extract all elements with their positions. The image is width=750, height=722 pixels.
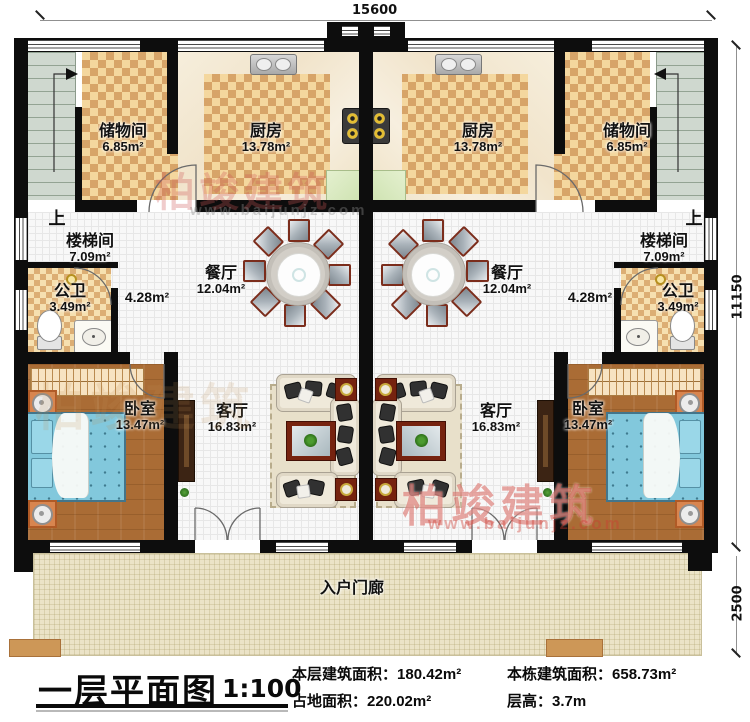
wall-stub-right — [688, 541, 712, 571]
label-kitchen-right: 厨房13.78m² — [454, 124, 502, 154]
title-underline-shadow — [36, 710, 288, 712]
label-dining-left: 餐厅12.04m² — [197, 266, 245, 296]
stat-label: 本层建筑面积： — [292, 666, 397, 683]
dim-tick — [706, 10, 716, 20]
label-bathroom-left: 公卫3.49m² — [49, 284, 90, 314]
label-bathroom-right: 公卫3.49m² — [657, 284, 698, 314]
dimension-right-lower: 2500 — [731, 590, 746, 622]
stat-value: 180.42m² — [397, 666, 461, 683]
title-underline — [36, 704, 288, 708]
label-storage-right: 储物间6.85m² — [603, 124, 651, 154]
label-up-left: 上 — [49, 204, 66, 229]
stat-value: 658.73m² — [612, 666, 676, 683]
label-stairwell-left: 楼梯间7.09m² — [66, 234, 114, 264]
dimension-line-top — [40, 20, 712, 21]
label-bedroom-right: 卧室13.47m² — [564, 402, 612, 432]
label-dining-right: 餐厅12.04m² — [483, 266, 531, 296]
stat-building-area: 本栋建筑面积：658.73m² — [507, 663, 676, 684]
porch-step — [9, 639, 61, 657]
porch-step — [546, 639, 603, 657]
stat-label: 占地面积： — [292, 693, 367, 710]
stat-floor-area: 本层建筑面积：180.42m² — [292, 663, 461, 684]
stat-footprint-area: 占地面积：220.02m² — [292, 690, 431, 711]
label-stairwell-right: 楼梯间7.09m² — [640, 234, 688, 264]
stat-label: 本栋建筑面积： — [507, 666, 612, 683]
label-living-left: 客厅16.83m² — [208, 404, 256, 434]
stat-label: 层高： — [507, 693, 552, 710]
label-storage-left: 储物间6.85m² — [99, 124, 147, 154]
floor-plan-canvas: 15600 11150 2500 — [0, 0, 750, 722]
drawing-scale: 1:100 — [222, 674, 302, 703]
label-up-right: 上 — [686, 204, 703, 229]
stat-value: 3.7m — [552, 693, 586, 710]
dimension-right-upper: 11150 — [731, 280, 746, 320]
label-hallway-right: 4.28m² — [568, 290, 612, 304]
label-kitchen-left: 厨房13.78m² — [242, 124, 290, 154]
dimension-top: 15600 — [352, 3, 397, 18]
label-bedroom-left: 卧室13.47m² — [116, 402, 164, 432]
stat-floor-height: 层高：3.7m — [507, 690, 586, 711]
label-hallway-left: 4.28m² — [125, 290, 169, 304]
dim-tick — [35, 10, 45, 20]
label-porch: 入户门廊 — [320, 581, 384, 597]
stat-value: 220.02m² — [367, 693, 431, 710]
label-living-right: 客厅16.83m² — [472, 404, 520, 434]
